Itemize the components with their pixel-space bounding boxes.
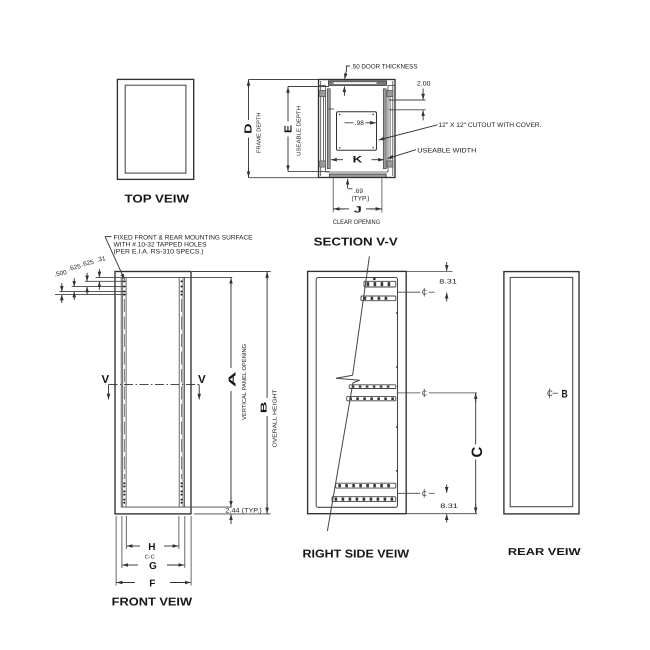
svg-text:CLEAR OPENING: CLEAR OPENING [333,219,380,226]
svg-text:E: E [284,125,295,133]
svg-text:G: G [149,561,157,572]
svg-text:V: V [198,374,206,386]
svg-text:OVERALL HEIGHT: OVERALL HEIGHT [273,389,279,448]
svg-text:.98: .98 [355,120,364,127]
svg-text:A: A [228,372,239,388]
svg-text:REAR VEIW: REAR VEIW [508,547,581,558]
svg-text:C-C: C-C [145,554,155,560]
svg-text:VERTICAL PANEL OPENING: VERTICAL PANEL OPENING [242,344,248,420]
svg-text:12" X 12" CUTOUT WITH COV: 12" X 12" CUTOUT WITH COVER. [438,122,541,129]
svg-text:(TYP.): (TYP.) [352,195,370,202]
svg-text:RIGHT SIDE VEIW: RIGHT SIDE VEIW [303,548,410,560]
svg-text:.50 DOOR THICKNESS: .50 DOOR THICKNESS [351,63,418,70]
svg-text:USEABLE DEPTH: USEABLE DEPTH [297,106,303,156]
svg-text:V: V [101,374,109,386]
svg-text:B: B [561,389,567,401]
svg-text:8.31: 8.31 [439,278,457,285]
svg-text:J: J [354,204,362,214]
svg-text:8.31: 8.31 [440,503,458,510]
svg-text:.69: .69 [354,188,363,195]
svg-text:FIXED FRONT & REAR MOUNTING SU: FIXED FRONT & REAR MOUNTING SURFACE [114,234,254,241]
svg-text:D: D [244,123,255,133]
svg-text:(PER E.I.A. RS-310 SPECS.): (PER E.I.A. RS-310 SPECS.) [114,249,204,256]
svg-text:USEABLE WIDTH: USEABLE WIDTH [417,148,476,155]
svg-text:K: K [353,154,363,165]
svg-text:SECTION V-V: SECTION V-V [314,236,398,248]
svg-text:FRONT VEIW: FRONT VEIW [112,597,193,609]
svg-text:F: F [149,579,155,590]
svg-text:B: B [259,402,269,414]
svg-text:WITH # 10-32 TAPPED HOLES: WITH # 10-32 TAPPED HOLES [114,242,208,249]
svg-text:C: C [469,447,486,458]
svg-text:FRAME DEPTH: FRAME DEPTH [257,113,263,154]
svg-text:2.00: 2.00 [417,81,431,88]
svg-text:H: H [148,542,155,553]
svg-text:2.44 (TYP.): 2.44 (TYP.) [225,507,261,514]
svg-text:TOP VEIW: TOP VEIW [125,194,190,206]
